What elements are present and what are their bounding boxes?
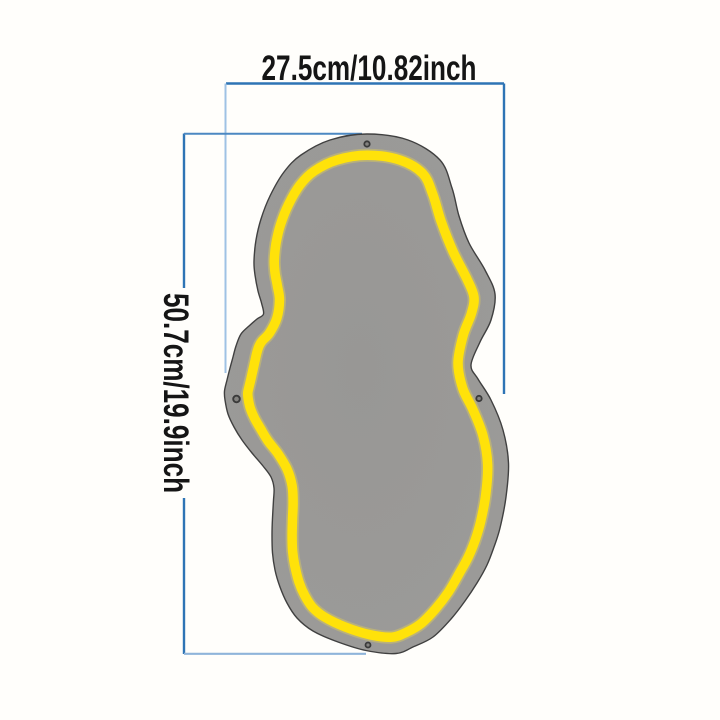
svg-text:50.7cm/19.9inch: 50.7cm/19.9inch	[156, 293, 195, 493]
svg-text:27.5cm/10.82inch: 27.5cm/10.82inch	[262, 49, 477, 88]
